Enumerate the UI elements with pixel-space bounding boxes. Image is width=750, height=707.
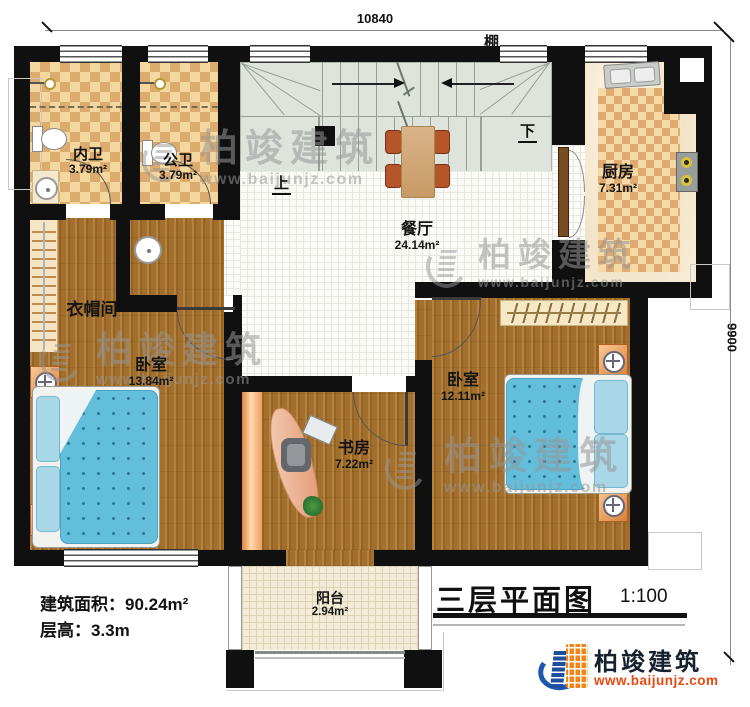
- wall-bath-bottom-b: [110, 204, 165, 220]
- balcony-post-left: [226, 650, 254, 688]
- shower-head-public: [154, 78, 166, 90]
- brand-name: 柏竣建筑: [594, 642, 702, 677]
- dining-chair: [385, 164, 402, 188]
- washbasin-private: [35, 177, 58, 200]
- note-label: 建筑面积：: [40, 595, 125, 614]
- window-top-kitchen: [585, 45, 647, 63]
- balcony-railing: [255, 651, 405, 654]
- stair-arrow-right-icon: [394, 78, 405, 88]
- shower-line-public: [140, 106, 218, 108]
- balcony-wall-right: [418, 566, 432, 650]
- window-bottom-bedroom-left: [64, 549, 198, 567]
- shower-arm-public: [140, 82, 155, 84]
- sheet-fold-left: [60, 390, 96, 454]
- kitchen-door-panel: [558, 147, 569, 237]
- wall-bath-bottom-c: [213, 204, 240, 220]
- desk-chair: [281, 438, 311, 472]
- balcony-railing-2: [255, 657, 405, 659]
- bedroom-right-door-floor: [415, 300, 432, 362]
- dimension-top-value: 10840: [340, 11, 410, 26]
- wardrobe-right: [500, 300, 628, 326]
- dimension-right-value: 9900: [725, 318, 740, 358]
- room-label-dining: 餐厅 24.14m²: [385, 221, 449, 253]
- page-title: 三层平面图: [436, 577, 596, 619]
- balcony-wall-left: [228, 566, 242, 650]
- room-label-balcony: 阳台 2.94m²: [294, 590, 366, 619]
- watermark: 柏竣建筑 www.baijunjz.com: [478, 238, 638, 290]
- note-floor-height: 层高：3.3m: [40, 616, 130, 641]
- shower-line-private: [30, 106, 122, 108]
- pillow: [594, 380, 628, 434]
- note-value: 90.24m²: [125, 595, 188, 614]
- nightstand: [598, 344, 628, 378]
- room-label-cloakroom: 衣帽间: [55, 300, 129, 320]
- watermark-logo-icon: [383, 444, 427, 492]
- balcony-post-right: [404, 650, 442, 688]
- note-label: 层高：: [40, 621, 91, 640]
- note-building-area: 建筑面积：90.24m²: [40, 590, 188, 615]
- brand-url: www.baijunjz.com: [594, 673, 719, 688]
- wall-bath-divider: [122, 62, 140, 204]
- study-cabinet: [242, 392, 262, 550]
- kitchen-flue-inner: [680, 58, 704, 82]
- scale-label: 1:100: [620, 586, 668, 608]
- dining-chair: [433, 130, 450, 154]
- watermark: 柏竣建筑 www.baijunjz.com: [444, 438, 624, 497]
- wall-bedroom-right-east: [630, 298, 648, 566]
- stair-down-label: 下: [518, 123, 537, 143]
- wall-alcove-west: [116, 220, 130, 296]
- dining-chair: [385, 130, 402, 154]
- watermark-logo-icon: [38, 336, 82, 384]
- room-label-bedroom-left: 卧室 13.84m²: [115, 357, 187, 389]
- kitchen-sink: [603, 61, 661, 89]
- shower-arm-private: [30, 82, 45, 84]
- washbasin-corridor: [134, 236, 162, 264]
- note-value: 3.3m: [91, 621, 130, 640]
- pillow: [36, 466, 60, 532]
- room-label-kitchen: 厨房 7.31m²: [587, 164, 649, 196]
- window-top-4: [500, 45, 547, 63]
- canopy-label: 棚: [484, 31, 499, 52]
- dining-chair: [433, 164, 450, 188]
- balcony-door-floor: [286, 550, 374, 566]
- floor-plan: 柏竣建筑 www.baijunjz.com 柏竣建筑 www.baijunjz.…: [0, 0, 750, 707]
- kitchen-stove: [676, 152, 698, 192]
- dining-table: [401, 126, 435, 198]
- wall-study-top-stub: [406, 376, 415, 392]
- window-top-1: [60, 45, 122, 63]
- room-label-bedroom-right: 卧室 12.11m²: [428, 372, 498, 404]
- dimension-line-top: [45, 30, 721, 31]
- stair-arrow-left-icon: [441, 78, 452, 88]
- window-top-2: [148, 45, 208, 63]
- wall-bath-bottom-a: [14, 204, 66, 220]
- wall-kitchen-west-upper: [552, 46, 585, 145]
- wall-bottom-bedroom-right: [415, 550, 648, 566]
- stair-up-label: 上: [272, 175, 291, 195]
- stair-arrow-line-left: [332, 83, 394, 85]
- door-leaf-cloakroom: [177, 307, 235, 310]
- stair-arrow-line-right: [452, 83, 514, 85]
- pillow: [36, 396, 60, 462]
- room-label-bath-public: 公卫 3.79m²: [148, 152, 208, 183]
- window-top-3: [250, 45, 310, 63]
- room-label-study: 书房 7.22m²: [322, 440, 386, 472]
- room-label-bath-private: 内卫 3.79m²: [58, 146, 118, 177]
- shower-head-private: [44, 78, 56, 90]
- cloakroom-rail: [30, 220, 58, 352]
- plant: [303, 496, 323, 516]
- brand-logo-icon: [538, 640, 592, 694]
- title-underline-thin: [433, 624, 685, 626]
